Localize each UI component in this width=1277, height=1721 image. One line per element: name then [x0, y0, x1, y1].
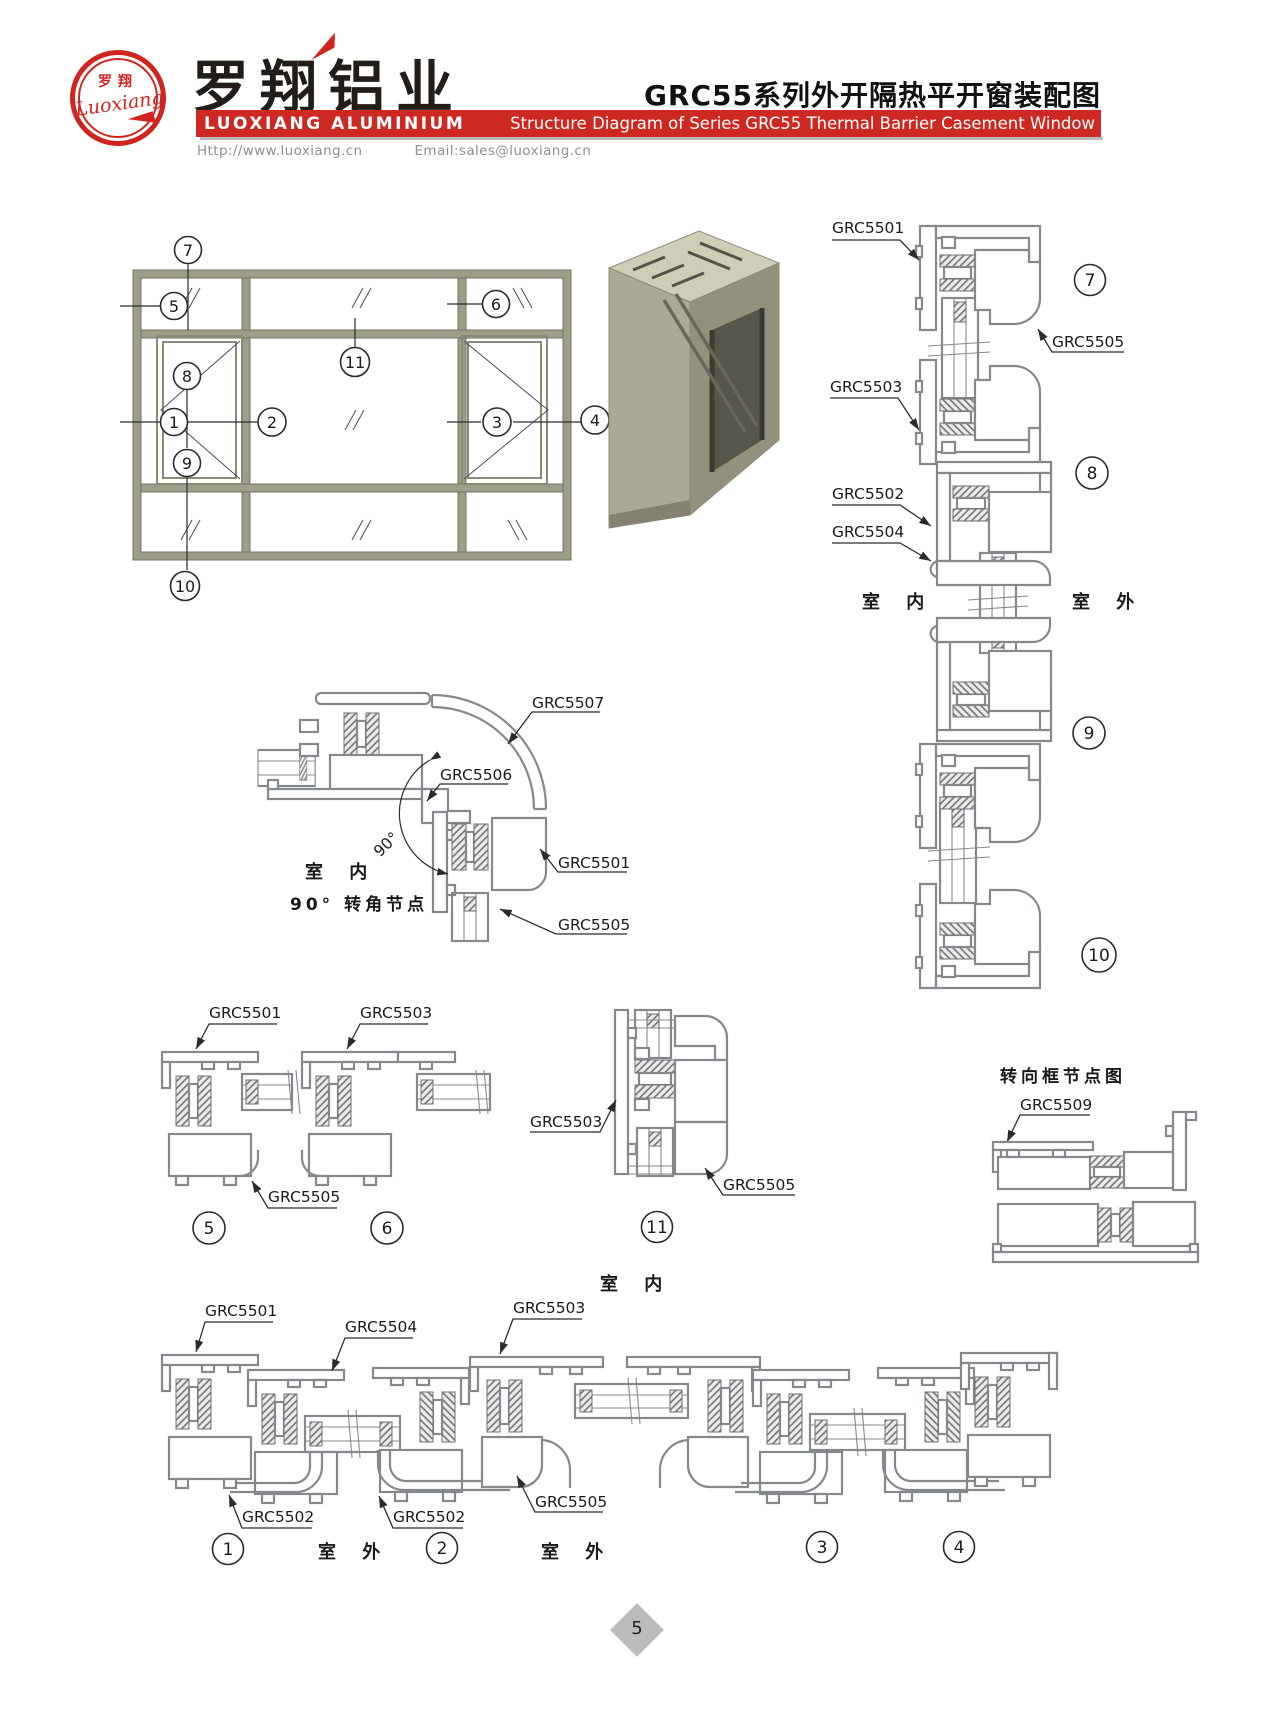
page-title-cn: GRC55系列外开隔热平开窗装配图 [644, 74, 1101, 114]
page-title-en: Structure Diagram of Series GRC55 Therma… [510, 114, 1101, 133]
page-number: 5 [618, 1618, 656, 1639]
vertical-section-stack: GRC5501 GRC5505 GRC5503 GRC5502 GRC5504 … [830, 219, 1144, 988]
horizontal-section-strip: 室 内 [162, 1273, 1057, 1565]
svg-text:10: 10 [175, 577, 195, 596]
callout-2: 2 [258, 408, 286, 436]
svg-text:6: 6 [382, 1219, 393, 1239]
website-text: Http://www.luoxiang.cn [197, 143, 363, 159]
svg-text:3: 3 [817, 1538, 828, 1558]
callout-6-section: 6 [371, 1212, 403, 1244]
company-logo-icon: 罗翔 Luoxiang [70, 50, 166, 146]
part-label: GRC5502 [242, 1508, 314, 1526]
corner-node-detail: 90° GRC5507 GRC5506 GRC5501 GRC5505 室 内 … [258, 693, 630, 941]
svg-text:2: 2 [267, 413, 277, 432]
part-label: GRC5501 [558, 854, 630, 872]
part-label: GRC5502 [393, 1508, 465, 1526]
catalog-page: 罗翔 Luoxiang 罗翔铝业 GRC55系列外开隔热平开窗装配图 LUOXI… [0, 0, 1277, 1721]
svg-text:9: 9 [1084, 724, 1095, 744]
email-text: Email:sales@luoxiang.cn [415, 143, 592, 159]
svg-text:8: 8 [182, 367, 192, 386]
svg-text:11: 11 [345, 353, 365, 372]
outdoor-label: 室 外 [541, 1541, 613, 1563]
callout-7-section: 7 [1075, 265, 1106, 296]
part-label: GRC5503 [530, 1113, 602, 1131]
part-label: GRC5504 [832, 523, 904, 541]
outdoor-label: 室 外 [1072, 591, 1144, 613]
callout-9: 9 [174, 450, 201, 477]
indoor-label: 室 内 [305, 861, 377, 883]
callout-4: 4 [581, 406, 609, 434]
section-11-detail: GRC5503 GRC5505 11 [530, 1010, 795, 1243]
callout-10: 10 [171, 572, 200, 601]
part-label: GRC5501 [209, 1004, 281, 1022]
callout-11: 11 [341, 348, 370, 377]
company-name-en: LUOXIANG ALUMINIUM [196, 114, 465, 134]
outdoor-label: 室 外 [318, 1541, 390, 1563]
callout-9-section: 9 [1073, 717, 1105, 749]
callout-3: 3 [483, 408, 511, 436]
callout-7: 7 [175, 237, 202, 264]
part-label: GRC5501 [205, 1302, 277, 1320]
svg-text:11: 11 [646, 1218, 668, 1238]
part-label: GRC5503 [360, 1004, 432, 1022]
callout-4-section: 4 [944, 1532, 975, 1563]
indoor-label: 室 内 [600, 1273, 672, 1295]
contact-line: Http://www.luoxiang.cnEmail:sales@luoxia… [197, 143, 643, 159]
glass-marks [181, 288, 532, 540]
svg-text:1: 1 [223, 1540, 234, 1560]
header-bar-shadow [200, 137, 1103, 140]
turn-frame-node: 转向框节点图 GRC5509 [993, 1066, 1198, 1262]
window-elevation: 7 5 6 11 8 1 2 3 4 9 10 [120, 237, 609, 601]
glass-6 [417, 1070, 490, 1114]
svg-text:5: 5 [204, 1219, 215, 1239]
mullion-tower [470, 1357, 603, 1488]
part-label: GRC5501 [832, 219, 904, 237]
part-label: GRC5505 [1052, 333, 1124, 351]
callout-2-section: 2 [427, 1533, 458, 1564]
svg-text:7: 7 [183, 241, 193, 260]
elevation-leaders [120, 264, 581, 570]
svg-text:5: 5 [169, 297, 179, 316]
callout-8: 8 [174, 363, 201, 390]
assembly-drawing: 7 5 6 11 8 1 2 3 4 9 10 [0, 160, 1277, 1721]
part-label: GRC5509 [1020, 1096, 1092, 1114]
angle-label: 90° [370, 829, 402, 861]
part-label: GRC5502 [832, 485, 904, 503]
svg-text:2: 2 [437, 1539, 448, 1559]
part-label: GRC5505 [268, 1188, 340, 1206]
glass-run-3 [810, 1408, 905, 1456]
callout-11-section: 11 [642, 1212, 673, 1243]
part-label: GRC5503 [513, 1299, 585, 1317]
part-label: GRC5507 [532, 694, 604, 712]
part-label: GRC5505 [558, 916, 630, 934]
svg-text:1: 1 [169, 413, 179, 432]
callout-3-section: 3 [807, 1532, 838, 1563]
callout-6: 6 [483, 291, 510, 318]
part-label: GRC5503 [830, 378, 902, 396]
section-5-6-details: GRC5501 GRC5503 GRC5505 5 6 [162, 1004, 490, 1244]
isometric-profile-image [609, 231, 779, 528]
svg-text:4: 4 [954, 1538, 965, 1558]
part-label: GRC5506 [440, 766, 512, 784]
svg-text:3: 3 [492, 413, 502, 432]
callout-1-section: 1 [213, 1534, 244, 1565]
indoor-label: 室 内 [862, 591, 934, 613]
corner-caption: 90° 转角节点 [290, 894, 428, 915]
callout-5-section: 5 [193, 1212, 225, 1244]
callout-8-section: 8 [1076, 457, 1108, 489]
header-red-bar: LUOXIANG ALUMINIUM Structure Diagram of … [196, 110, 1101, 137]
callout-10-section: 10 [1082, 938, 1116, 972]
svg-text:6: 6 [491, 295, 501, 314]
turn-frame-title: 转向框节点图 [1000, 1066, 1126, 1087]
glass-run-2 [575, 1378, 688, 1424]
svg-text:9: 9 [182, 454, 192, 473]
svg-text:4: 4 [590, 411, 600, 430]
svg-text:7: 7 [1085, 271, 1096, 291]
part-label: GRC5505 [723, 1176, 795, 1194]
part-label: GRC5504 [345, 1318, 417, 1336]
svg-text:8: 8 [1087, 464, 1098, 484]
glass-5 [242, 1070, 300, 1114]
mullion-tower-mirror [627, 1357, 760, 1488]
svg-text:10: 10 [1088, 946, 1110, 966]
callout-1: 1 [161, 409, 188, 436]
callout-5: 5 [161, 293, 188, 320]
part-label: GRC5505 [535, 1493, 607, 1511]
